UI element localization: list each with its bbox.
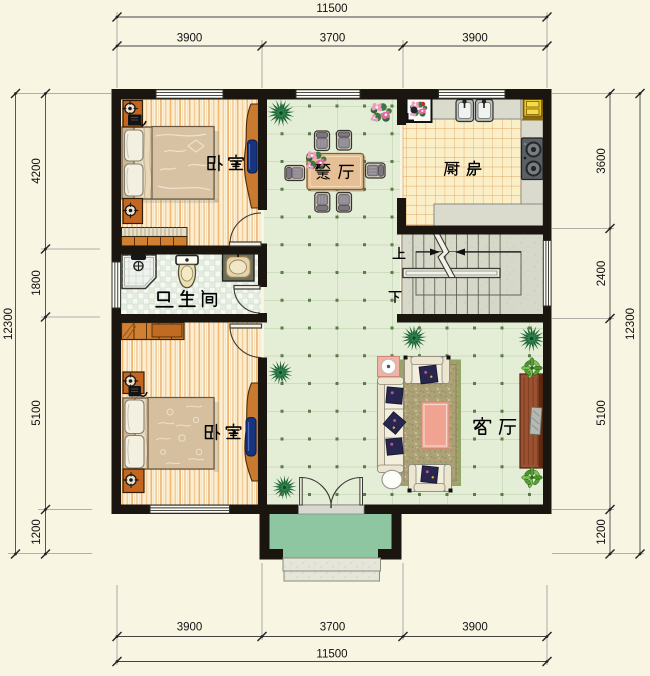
svg-text:3900: 3900 <box>177 622 203 634</box>
svg-text:5100: 5100 <box>31 400 43 426</box>
svg-text:3600: 3600 <box>596 148 608 174</box>
svg-text:12300: 12300 <box>625 308 637 340</box>
svg-text:12300: 12300 <box>3 308 15 340</box>
svg-text:1200: 1200 <box>31 519 43 545</box>
svg-text:1200: 1200 <box>596 519 608 545</box>
svg-text:3900: 3900 <box>462 622 488 634</box>
svg-text:2400: 2400 <box>596 261 608 287</box>
svg-text:3900: 3900 <box>462 33 488 45</box>
svg-text:5100: 5100 <box>596 400 608 426</box>
svg-text:1800: 1800 <box>31 270 43 296</box>
svg-text:3900: 3900 <box>177 33 203 45</box>
svg-text:3700: 3700 <box>320 33 346 45</box>
svg-text:11500: 11500 <box>316 3 347 15</box>
svg-text:4200: 4200 <box>31 158 43 184</box>
svg-text:3700: 3700 <box>320 622 346 634</box>
svg-text:11500: 11500 <box>316 649 347 661</box>
